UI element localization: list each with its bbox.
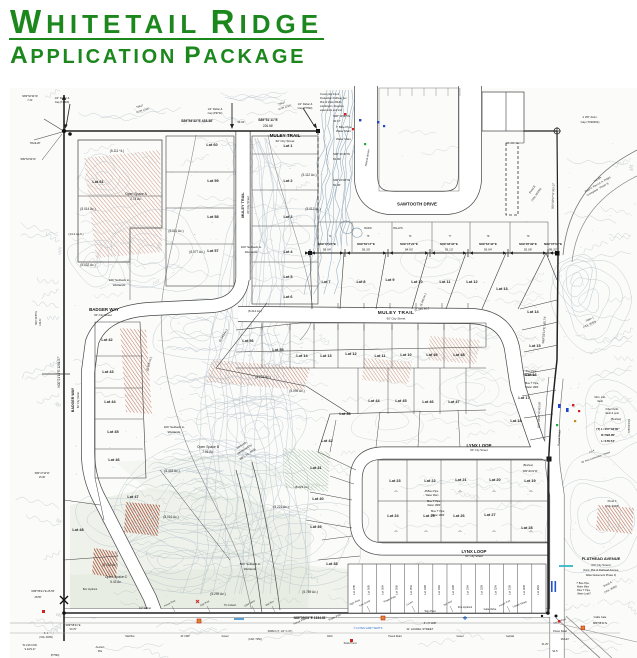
svg-text:60' City Street: 60' City Street [387,317,406,321]
svg-text:Wetlands: Wetlands [168,430,181,434]
svg-text:S. 1: S. 1 [44,632,49,635]
svg-text:(5.111 *4.): (5.111 *4.) [110,149,124,153]
svg-text:Water Leak?: Water Leak? [577,593,591,596]
svg-text:S89°52'34"W: S89°52'34"W [20,157,36,161]
svg-text:93.30': 93.30' [362,248,371,252]
svg-text:© LOYES GARY WATTS: © LOYES GARY WATTS [354,626,383,630]
svg-text:Ditch: Ditch [327,635,333,638]
svg-text:Lot 44: Lot 44 [104,400,116,404]
svg-text:Mon. L&L: Mon. L&L [594,395,606,399]
svg-text:Lot 33B: Lot 33B [451,585,455,595]
svg-text:S89°58'41"E: S89°58'41"E [593,621,608,625]
svg-text:MULEY TRAIL: MULEY TRAIL [378,310,415,316]
svg-text:Lot 44: Lot 44 [368,399,380,403]
svg-text:N89°58'41"E 26.55': N89°58'41"E 26.55' [31,589,55,593]
svg-text:7' Blue Pipe,: 7' Blue Pipe, [425,490,439,493]
svg-text:Fiber Optic: Fiber Optic [606,407,619,411]
svg-text:S.22/S.27: S.22/S.27 [25,648,37,651]
svg-text:SAWTOOTH DRIVE: SAWTOOTH DRIVE [397,202,437,207]
svg-text:Lot 39: Lot 39 [310,525,321,529]
svg-text:120.41': 120.41' [39,318,42,326]
svg-text:Lot 47: Lot 47 [127,495,138,499]
svg-text:Cattle Gate: Cattle Gate [594,616,607,619]
svg-text:Lot 36A: Lot 36A [380,585,384,595]
svg-text:(5.221 Ac.): (5.221 Ac.) [273,505,288,509]
svg-text:93.04': 93.04' [323,248,332,252]
svg-text:Gravel: Gravel [221,635,229,638]
svg-text:Lot 19: Lot 19 [524,479,535,483]
svg-text:7.41': 7.41' [27,98,33,102]
svg-text:S89°40'22"W: S89°40'22"W [523,470,538,473]
svg-text:Lot 36B: Lot 36B [366,585,370,595]
svg-text:Wetlands: Wetlands [113,283,126,287]
svg-text:(5.299 Ac.): (5.299 Ac.) [210,592,225,596]
svg-text:Water 1883': Water 1883' [525,386,539,389]
svg-text:Lot 32A: Lot 32A [494,585,498,595]
svg-text:Lot 9: Lot 9 [385,278,394,282]
svg-text:93.04': 93.04' [484,248,493,252]
svg-text:Blue T' Pipe,: Blue T' Pipe, [427,500,441,503]
svg-text:(5.211 Ac.): (5.211 Ac.) [248,309,262,313]
svg-text:1/2" Rebar: 1/2" Rebar [139,606,151,610]
svg-text:(5.233 Ac.): (5.233 Ac.) [255,375,270,379]
svg-text:Lot 33A: Lot 33A [465,585,469,595]
svg-text:Lot 28: Lot 28 [521,526,532,530]
svg-text:Lot 38: Lot 38 [326,562,337,566]
svg-text:subdivision. Requires: subdivision. Requires [320,105,345,108]
svg-text:N00°12'35"E: N00°12'35"E [35,311,38,326]
svg-text:(VOL 30/65): (VOL 30/65) [39,636,53,639]
svg-text:Lot 42: Lot 42 [101,338,112,342]
svg-text:(VOL 30/65): (VOL 30/65) [605,504,619,508]
svg-text:Lot 17: Lot 17 [518,396,529,400]
svg-text:R=598.00': R=598.00' [601,433,615,437]
svg-text:(CAP. 7250): (CAP. 7250) [248,638,262,641]
svg-text:31.25': 31.25' [542,643,549,646]
svg-text:(5.014 Ac.): (5.014 Ac.) [80,207,95,211]
svg-text:Lot 3: Lot 3 [283,215,292,219]
svg-text:Lot 29A: Lot 29A [536,585,540,595]
svg-text:Lot 55: Lot 55 [272,348,283,352]
svg-text:(P7590): (P7590) [51,654,60,657]
svg-text:(5.016 Ac.): (5.016 Ac.) [163,515,178,519]
svg-text:Water 1883': Water 1883' [431,514,445,517]
svg-text:BADGER WAY: BADGER WAY [89,307,119,312]
svg-text:Lot 31B: Lot 31B [508,585,512,595]
svg-text:(Bushes): (Bushes) [611,417,622,421]
svg-text:Cap (T2506): Cap (T2506) [55,100,70,104]
svg-text:Stock Pond: Stock Pond [344,642,357,645]
svg-text:Cap (P7590): Cap (P7590) [298,106,313,110]
svg-text:S89°52'42"E: S89°52'42"E [479,242,497,246]
svg-text:Plat of Vision Bluffs: Plat of Vision Bluffs [320,101,342,104]
svg-text:Vault & post: Vault & post [605,411,619,415]
svg-text:Lot 7: Lot 7 [321,280,330,284]
svg-text:Lot 60: Lot 60 [206,143,217,147]
svg-text:Lot 48: Lot 48 [453,353,464,357]
svg-text:easements and trail: easements and trail [320,109,342,112]
svg-text:Lot 40: Lot 40 [312,497,323,501]
svg-text:Water Main: Water Main [336,137,351,141]
svg-text:Pond 4: Pond 4 [608,499,617,503]
svg-text:BASIN: BASIN [364,227,371,230]
svg-text:Lot 4: Lot 4 [283,250,293,254]
svg-text:FLATHEAD AVENUE: FLATHEAD AVENUE [582,556,621,561]
svg-text:Lot 14: Lot 14 [527,310,539,314]
svg-text:S89°47'10"W: S89°47'10"W [35,472,50,475]
svg-text:Lot 10: Lot 10 [400,353,411,357]
svg-text:Paved Road: Paved Road [557,430,562,446]
svg-text:2.74 Ac.: 2.74 Ac. [130,197,142,201]
svg-text:Lot 13: Lot 13 [496,287,507,291]
svg-text:60' City Street: 60' City Street [276,139,295,143]
svg-text:Lot 21: Lot 21 [455,478,466,482]
svg-text:5.43 Ac.: 5.43 Ac. [110,580,122,584]
svg-text:Lot 18: Lot 18 [510,419,521,423]
svg-text:500' Setback to: 500' Setback to [240,562,261,566]
svg-text:39.04': 39.04' [237,120,245,124]
svg-text:(5.223 Ac.): (5.223 Ac.) [295,485,310,489]
svg-text:Water Main: Water Main [426,494,439,497]
svg-text:42' CMP: 42' CMP [180,635,189,638]
svg-text:100' Setback to: 100' Setback to [109,278,130,282]
svg-text:Tin Culvert: Tin Culvert [224,603,237,607]
svg-text:(T) L=157°33'30": (T) L=157°33'30" [596,427,620,431]
svg-text:S4.5': S4.5' [552,650,558,653]
svg-text:60' City Street: 60' City Street [465,554,483,558]
svg-text:Lot 15: Lot 15 [529,344,540,348]
svg-text:Creek plan b/w &: Creek plan b/w & [320,93,339,96]
svg-text:Lot 22: Lot 22 [424,479,435,483]
svg-text:7' Blue Pipe,: 7' Blue Pipe, [523,370,537,373]
svg-text:Lot 32B: Lot 32B [479,585,483,595]
svg-text:93.13': 93.13' [445,248,454,252]
svg-text:81.30': 81.30' [333,183,341,187]
svg-text:S89°58'41"E: S89°58'41"E [65,623,80,627]
svg-text:Lot 59: Lot 59 [207,179,218,183]
svg-text:Water Easement Phase 3): Water Easement Phase 3) [586,573,616,577]
svg-text:(5.032 Ac.): (5.032 Ac.) [80,263,95,267]
svg-text:Lot 47: Lot 47 [448,400,459,404]
svg-text:N00°21'14"E 1281.57': N00°21'14"E 1281.57' [57,356,61,387]
svg-text:5' x 5' CMP: 5' x 5' CMP [424,622,437,625]
svg-text:28.55': 28.55' [35,595,42,599]
svg-text:S89°47'24"E: S89°47'24"E [318,242,336,246]
svg-text:Lot 24: Lot 24 [387,514,399,518]
svg-text:Gravel: Gravel [456,635,464,638]
svg-text:94.93': 94.93' [405,248,414,252]
svg-text:(5.011 Ac.): (5.011 Ac.) [305,207,320,211]
svg-text:S89°56'17"E: S89°56'17"E [357,242,375,246]
svg-text:Wetlands: Wetlands [244,567,257,571]
svg-text:Lot 20: Lot 20 [489,478,500,482]
svg-text:N89°52'34"W: N89°52'34"W [22,94,38,98]
svg-text:W. LAUREL STREET: W. LAUREL STREET [407,627,434,631]
svg-text:(5.789 Ac.): (5.789 Ac.) [302,590,317,594]
svg-text:Lot 10: Lot 10 [411,280,422,284]
svg-text:7.06 Ac.: 7.06 Ac. [202,450,214,454]
svg-text:S89°54'32"E 438.38': S89°54'32"E 438.38' [181,119,213,123]
svg-text:Auction: Auction [96,645,105,649]
svg-text:226.66': 226.66' [263,124,274,128]
svg-text:S89°51'11"E: S89°51'11"E [258,118,278,122]
svg-text:L=178.73': L=178.73' [601,439,615,443]
svg-text:Asphalt: Asphalt [506,635,514,638]
svg-text:Vault: Vault [597,399,603,403]
svg-text:Lot 11: Lot 11 [375,354,386,358]
svg-text:Lot 43: Lot 43 [102,370,113,374]
svg-text:Wetlands: Wetlands [245,250,258,254]
svg-text:(Bushes): (Bushes) [523,464,533,467]
svg-text:Fire Hydrant: Fire Hydrant [458,605,473,609]
svg-text:Lot 42: Lot 42 [321,439,332,443]
svg-text:S78°02'24"E: S78°02'24"E [628,419,631,433]
svg-text:BADGER WAY: BADGER WAY [71,387,75,412]
svg-text:Power Road: Power Road [553,630,567,633]
svg-text:Lot 46: Lot 46 [422,400,433,404]
svg-text:60' City Street: 60' City Street [76,392,80,408]
svg-text:Lot 45: Lot 45 [107,430,118,434]
svg-text:Lot 14: Lot 14 [296,354,308,358]
svg-text:Open Space B: Open Space B [197,445,220,449]
svg-text:S00°24'06"W: S00°24'06"W [333,178,350,182]
svg-text:W 1/16 COR.: W 1/16 COR. [23,644,38,647]
svg-text:Lot 45: Lot 45 [395,399,406,403]
svg-text:Cap (T090364): Cap (T090364) [581,120,600,124]
svg-text:Open Space C: Open Space C [105,575,128,579]
svg-text:Lot 1: Lot 1 [283,144,292,148]
svg-text:Water 1883': Water 1883' [427,504,441,507]
svg-text:Lot 34A: Lot 34A [437,585,441,595]
svg-text:(5.095 Ac.): (5.095 Ac.) [289,389,304,393]
svg-text:Water Main: Water Main [336,129,351,133]
svg-text:(5.443 Ac.): (5.443 Ac.) [164,469,179,473]
svg-text:Lot 35A: Lot 35A [409,585,413,595]
svg-text:Lot 56: Lot 56 [242,339,253,343]
svg-text:Blue T' Pipe,: Blue T' Pipe, [525,382,539,385]
svg-text:1/2" Rebar &: 1/2" Rebar & [298,102,313,106]
svg-text:MULEY TRAIL: MULEY TRAIL [241,192,245,218]
svg-text:(5.112 Ac.): (5.112 Ac.) [301,173,316,177]
svg-text:(60' City Street): (60' City Street) [591,563,610,567]
svg-text:S89°46'34"E: S89°46'34"E [440,242,458,246]
svg-text:Lot 58: Lot 58 [207,215,218,219]
svg-text:S89°35'39"E: S89°35'39"E [519,242,537,246]
svg-text:Lot 11: Lot 11 [440,280,451,284]
svg-text:Lot 13: Lot 13 [320,354,331,358]
svg-text:Lot 26: Lot 26 [453,514,464,518]
svg-text:(Joint. Plat of Flathead Avenu: (Joint. Plat of Flathead Avenue, [583,568,619,572]
svg-text:Lot 30B: Lot 30B [522,585,526,595]
svg-text:S00°14'30"W: S00°14'30"W [333,152,350,156]
svg-text:99.32': 99.32' [549,248,558,252]
svg-text:Lot 2: Lot 2 [283,179,292,183]
svg-text:Lot 6: Lot 6 [283,295,292,299]
svg-text:Gate Valve: Gate Valve [484,607,497,611]
svg-text:Sign Post: Sign Post [424,609,435,613]
svg-text:60' City Street: 60' City Street [94,313,112,317]
svg-text:Lot 34B: Lot 34B [423,585,427,595]
svg-text:2 3/8" Alum.: 2 3/8" Alum. [583,115,598,119]
svg-text:100' Setback to: 100' Setback to [241,245,262,249]
svg-text:SW821 (3', 1/2" C.I.P.): SW821 (3', 1/2" C.I.P.) [268,630,293,633]
svg-text:Cap (P9734): Cap (P9734) [208,111,223,115]
svg-text:Lot 49: Lot 49 [426,353,437,357]
svg-text:(5.011 Ac.): (5.011 Ac.) [168,229,183,233]
svg-text:Pedestrian Pathway per: Pedestrian Pathway per [320,97,347,100]
svg-text:92.06': 92.06' [524,248,533,252]
svg-text:Lot 41: Lot 41 [310,466,321,470]
svg-text:Lot 61: Lot 61 [92,180,103,184]
svg-text:81.00': 81.00' [333,157,341,161]
svg-text:Lot 43: Lot 43 [339,412,350,416]
svg-text:60' City Street: 60' City Street [470,448,488,452]
svg-text:15.09': 15.09' [39,476,46,479]
svg-text:BALLPN: BALLPN [393,227,402,230]
svg-text:MULEY: MULEY [561,638,570,641]
svg-text:100' Setback to: 100' Setback to [164,425,185,429]
svg-text:33.76': 33.76' [70,627,77,631]
svg-text:S00°19'30"W: S00°19'30"W [333,114,350,118]
svg-text:Paved Road: Paved Road [388,635,402,638]
svg-text:N89°07'04"E: N89°07'04"E [544,242,562,246]
svg-text:(14.2 sq.ft.): (14.2 sq.ft.) [68,232,83,236]
svg-text:Open Space A: Open Space A [125,192,148,196]
svg-text:1/2" Rebar &: 1/2" Rebar & [208,107,223,111]
svg-text:Lot 48: Lot 48 [72,528,83,532]
svg-text:1/2" Rebar &: 1/2" Rebar & [55,96,70,100]
svg-text:Lot 5: Lot 5 [283,275,292,279]
svg-text:Lot 35B: Lot 35B [395,585,399,595]
svg-text:Blue T' Pipe,: Blue T' Pipe, [431,510,445,513]
svg-text:MULEY TRAIL: MULEY TRAIL [270,133,301,138]
svg-text:Lot 12: Lot 12 [466,280,477,284]
svg-text:Lot 8: Lot 8 [356,280,365,284]
svg-text:Box Hydrant: Box Hydrant [83,587,98,591]
svg-text:60' City Street: 60' City Street [246,196,250,214]
svg-text:Pile: Pile [98,649,103,653]
svg-text:Lot 57: Lot 57 [207,249,218,253]
svg-text:S89°47'21"E: S89°47'21"E [400,242,418,246]
svg-text:Lot 12: Lot 12 [345,352,356,356]
svg-text:Lot 46: Lot 46 [108,458,119,462]
svg-text:(5.077 Ac.): (5.077 Ac.) [189,250,204,254]
svg-text:Lot 37B: Lot 37B [352,585,356,595]
svg-text:(5.016 Ac.): (5.016 Ac.) [102,563,117,567]
svg-text:TRAIL28': TRAIL28' [30,141,41,145]
svg-text:Lot 23: Lot 23 [389,479,400,483]
svg-text:Water Main: Water Main [524,374,537,377]
svg-text:Mail Box: Mail Box [125,635,135,638]
svg-text:30.17': 30.17' [333,119,341,123]
svg-text:Lot 27: Lot 27 [484,513,495,517]
